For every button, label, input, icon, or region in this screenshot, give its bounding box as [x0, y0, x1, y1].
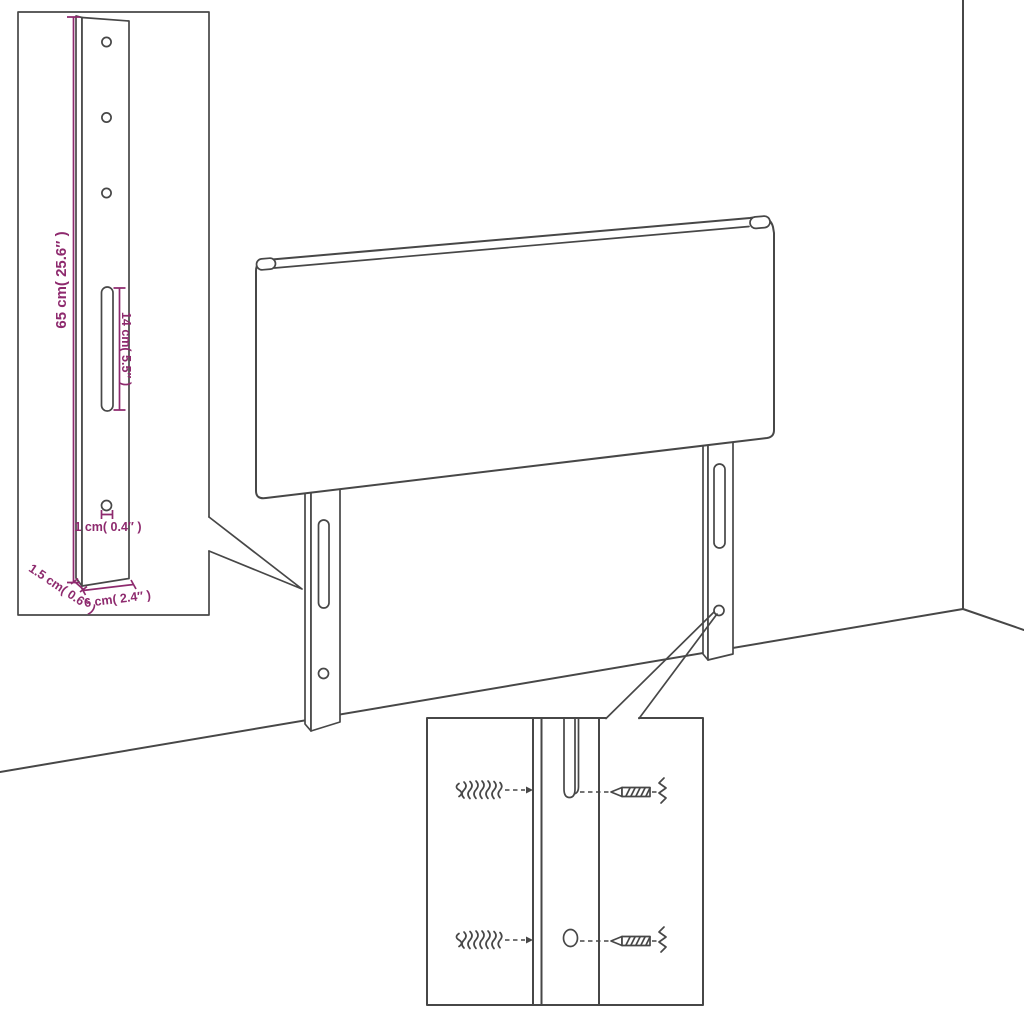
right-leg-hole — [714, 606, 724, 616]
inset-leg-hole-1 — [102, 37, 111, 46]
inset-leg-hole-2 — [102, 113, 111, 122]
inset2-callout-lines — [606, 612, 717, 719]
inset-leg-hole-3 — [102, 188, 111, 197]
headboard-left-leg — [305, 486, 340, 731]
diagram-canvas: 65 cm( 25.6″ ) 14 cm( 5.5″ ) 1 cm( 0.4″ … — [0, 0, 1024, 1024]
left-leg-side-face — [305, 489, 311, 731]
panel-top-left-roll-cap — [256, 258, 276, 271]
inset-leg-drawing — [76, 16, 129, 586]
dimension-label-height: 65 cm( 25.6″ ) — [53, 231, 70, 328]
dimension-label-slot: 14 cm( 5.5″ ) — [119, 312, 133, 386]
inset-leg-slot — [102, 287, 114, 411]
floor-line-right — [963, 609, 1024, 630]
left-leg-slot — [319, 520, 330, 608]
inset-leg-small-hole — [102, 501, 112, 511]
panel-outline — [256, 217, 774, 498]
assembly-diagram: 65 cm( 25.6″ ) 14 cm( 5.5″ ) 1 cm( 0.4″ … — [0, 0, 1024, 1024]
inset-leg-side-face — [76, 16, 82, 586]
right-leg-slot — [714, 464, 725, 548]
inset2-hole — [564, 930, 578, 947]
left-leg-hole — [319, 669, 329, 679]
inset-callout-lines — [209, 517, 302, 589]
inset2-background — [427, 718, 703, 1005]
dimension-label-hole: 1 cm( 0.4″ ) — [74, 520, 141, 534]
panel-top-right-roll-cap — [750, 216, 771, 229]
mounting-detail-inset — [427, 612, 717, 1005]
headboard-panel — [256, 216, 774, 499]
